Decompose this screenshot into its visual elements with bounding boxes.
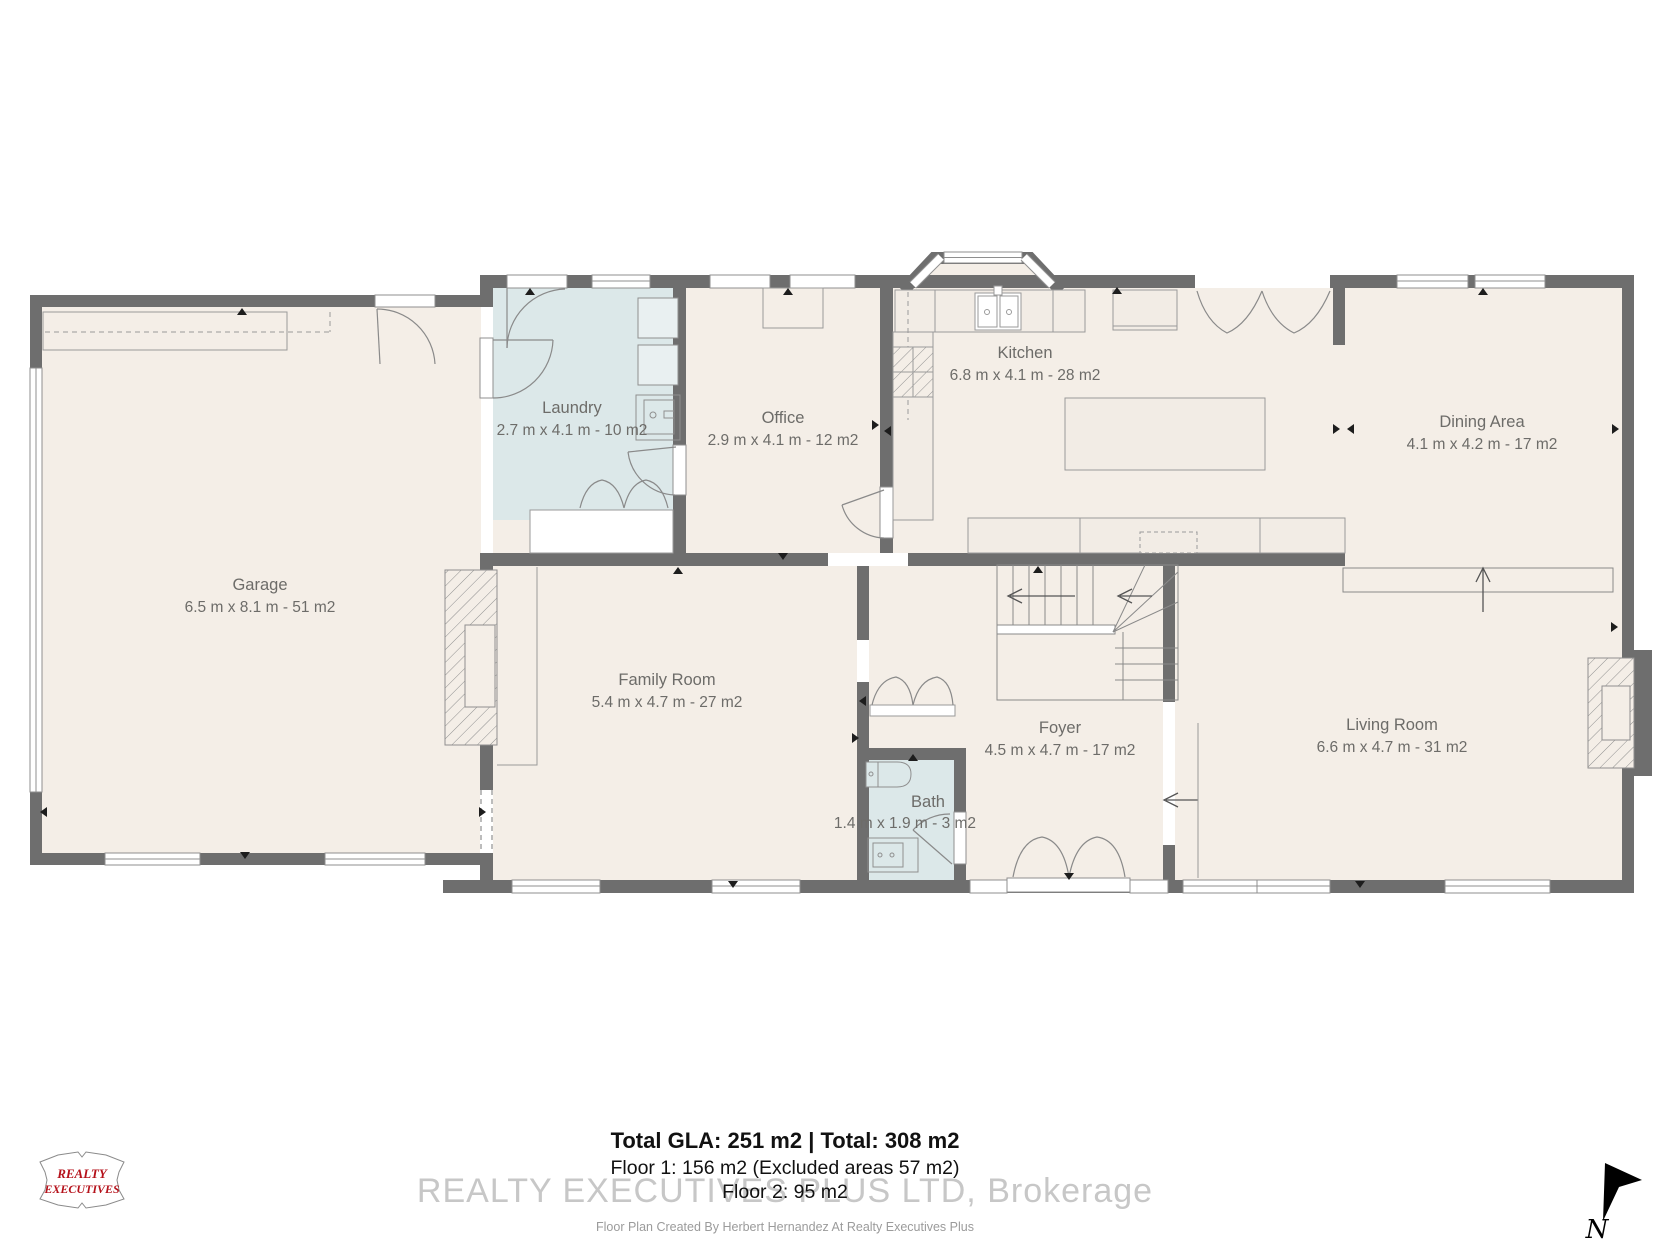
dining-dims: 4.1 m x 4.2 m - 17 m2 [1407,436,1558,453]
living-fireplace [1588,658,1634,768]
floor2-area-line: Floor 2: 95 m2 [285,1181,1285,1204]
living-dims: 6.6 m x 4.7 m - 31 m2 [1317,739,1468,756]
living-label: Living Room [1346,716,1438,734]
foyer-dims: 4.5 m x 4.7 m - 17 m2 [985,742,1136,759]
floor1-area-line: Floor 1: 156 m2 (Excluded areas 57 m2) [285,1157,1285,1180]
dishwasher [1140,532,1197,553]
logo-line1: REALTY [56,1166,108,1181]
kitchen-island [1065,398,1265,470]
floor-plan-drawing: Garage 6.5 m x 8.1 m - 51 m2 Laundry 2.7… [0,0,1680,1260]
kitchen-dims: 6.8 m x 4.1 m - 28 m2 [950,367,1101,384]
foyer-label: Foyer [1039,719,1082,737]
bath-dims: 1.4 m x 1.9 m - 3 m2 [834,815,976,832]
garage-label: Garage [232,576,287,594]
dining-label: Dining Area [1439,413,1525,431]
floor-plan-page: Garage 6.5 m x 8.1 m - 51 m2 Laundry 2.7… [0,0,1680,1260]
north-label: N [1585,1215,1610,1245]
laundry-dims: 2.7 m x 4.1 m - 10 m2 [497,422,648,439]
logo-line2: EXECUTIVES [43,1182,120,1196]
total-area-line: Total GLA: 251 m2 | Total: 308 m2 [285,1128,1285,1154]
realty-executives-logo: REALTY EXECUTIVES [40,1152,124,1208]
kitchen-sink [975,286,1021,330]
bath-label: Bath [911,793,945,811]
family-label: Family Room [618,671,715,689]
north-arrow-icon: N [1585,1163,1642,1245]
office-label: Office [762,409,805,427]
stove [893,347,933,397]
family-dims: 5.4 m x 4.7 m - 27 m2 [592,694,743,711]
fridge [1113,290,1177,330]
office-dims: 2.9 m x 4.1 m - 12 m2 [708,432,859,449]
garage-dims: 6.5 m x 8.1 m - 51 m2 [185,599,336,616]
credit-line: Floor Plan Created By Herbert Hernandez … [285,1220,1285,1234]
kitchen-label: Kitchen [997,344,1052,362]
laundry-label: Laundry [542,399,602,417]
floor-fills [40,254,1622,886]
